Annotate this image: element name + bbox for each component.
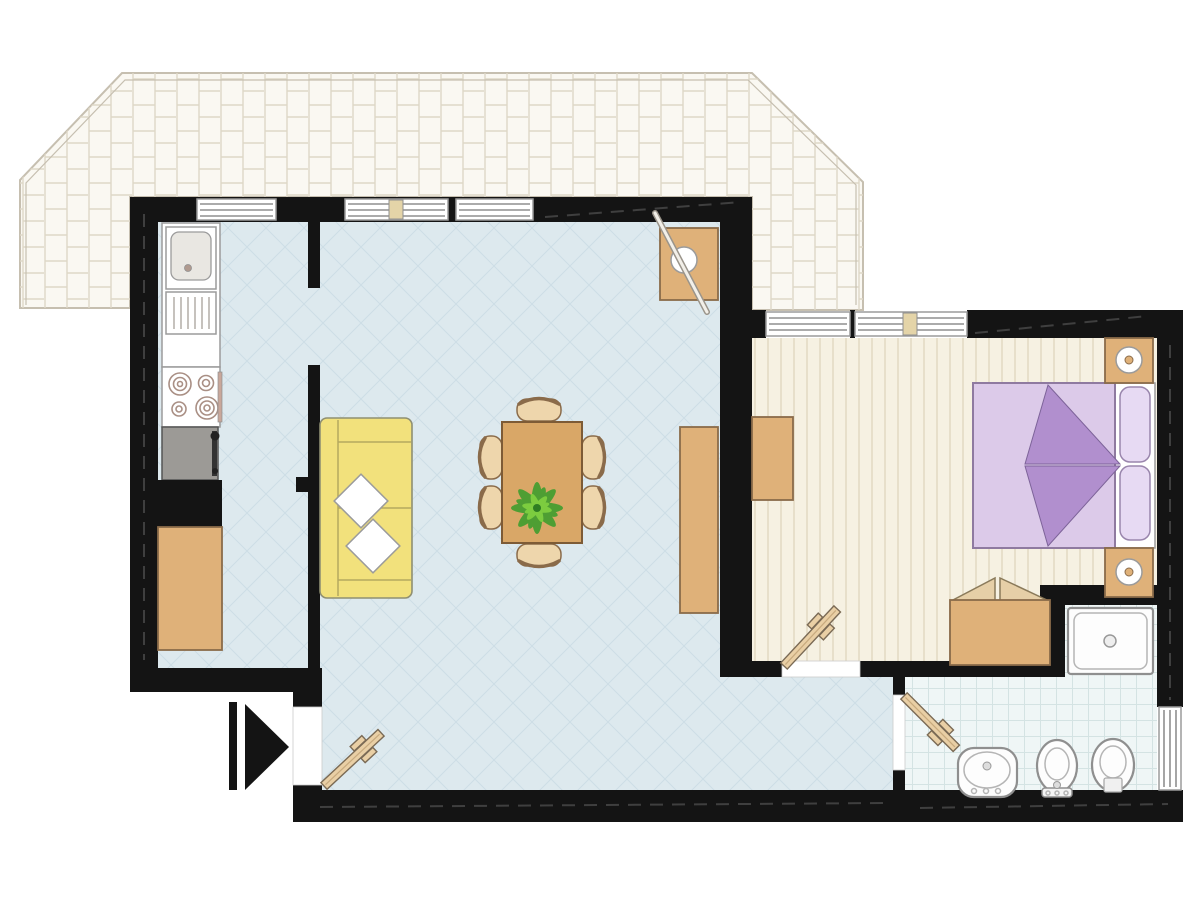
kitchen-black-cabinet: [158, 480, 222, 527]
kitchen-divider-lower: [308, 365, 320, 677]
bathroom-window: [1159, 707, 1181, 790]
toilet: [1092, 739, 1134, 792]
nightstand-bottom: [1105, 548, 1153, 597]
living-bedroom-divider-wall: [720, 222, 752, 665]
sofa: [320, 418, 412, 598]
bathroom-door-jamb-bottom: [893, 770, 905, 795]
living-window-2: [345, 199, 448, 220]
bedroom-wall-cabinet: [752, 417, 793, 500]
floor-plan-svg: [0, 0, 1200, 900]
living-sideboard: [680, 427, 718, 613]
kitchen-divider-knob: [296, 477, 308, 492]
kitchen-stove: [162, 367, 222, 427]
right-wall-lower: [1157, 790, 1183, 822]
lamp-bottom: [1125, 568, 1133, 576]
entry-door-opening: [293, 707, 322, 785]
kitchen-gray-appliance: [162, 427, 220, 480]
bathroom-door-opening: [893, 695, 905, 770]
bedroom-window-2: [855, 312, 967, 336]
bedroom-bottom-wall-left: [720, 661, 782, 677]
floor-plan-image: [0, 0, 1200, 900]
kitchen-tan-cabinet: [158, 527, 222, 650]
dining-chair-left-2: [480, 486, 503, 529]
dining-chair-left-1: [480, 436, 503, 479]
kitchen-drainer: [166, 292, 216, 334]
bedroom-window-1: [766, 312, 850, 336]
corner-unit: [655, 213, 718, 312]
washbasin: [958, 748, 1017, 797]
entry-arrow-marker: [229, 702, 289, 790]
dining-table: [502, 422, 582, 543]
kitchen-sink: [166, 227, 216, 289]
dining-chair-bottom: [517, 544, 561, 567]
bed-pillow-2: [1120, 466, 1150, 540]
potted-plant: [511, 482, 563, 534]
nightstand-top: [1105, 338, 1153, 383]
living-bottom-wall: [293, 790, 905, 822]
stove-handle: [218, 372, 222, 422]
bedroom-door-opening: [782, 661, 860, 677]
kitchen-divider-upper: [308, 222, 320, 288]
kitchen: [158, 223, 222, 650]
bed-pillow-1: [1120, 387, 1150, 462]
living-window-3: [456, 199, 533, 220]
living-window-1: [197, 199, 276, 220]
bedroom-top-wall-left: [752, 310, 766, 338]
dining-chair-top: [517, 399, 561, 422]
lamp-top: [1125, 356, 1133, 364]
bathroom-door-jamb-top: [893, 677, 905, 695]
shower-tray: [1068, 608, 1153, 674]
dining-chair-right-1: [582, 436, 605, 479]
bidet: [1037, 740, 1077, 797]
dining-chair-right-2: [582, 486, 605, 529]
